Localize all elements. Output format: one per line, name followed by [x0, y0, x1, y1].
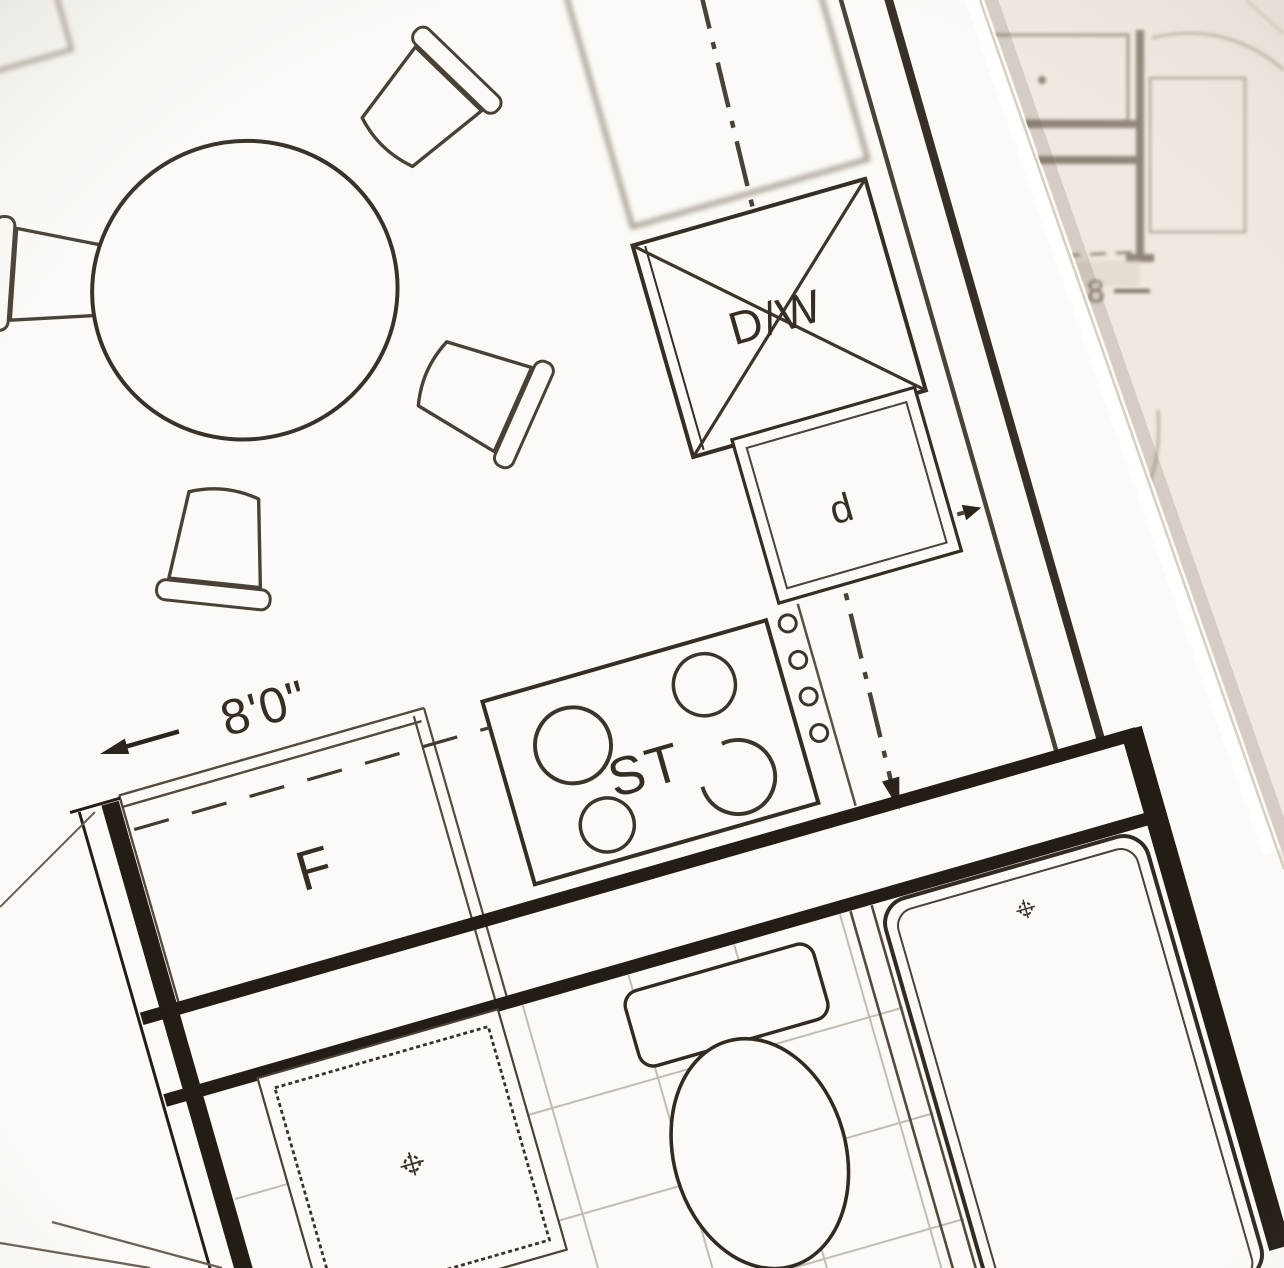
photo-of-floor-plans: d 0,8 D/W: [0, 0, 1284, 1268]
photo-vignette: [0, 0, 1284, 1268]
floor-plan-scene: d 0,8 D/W: [0, 0, 1284, 1268]
